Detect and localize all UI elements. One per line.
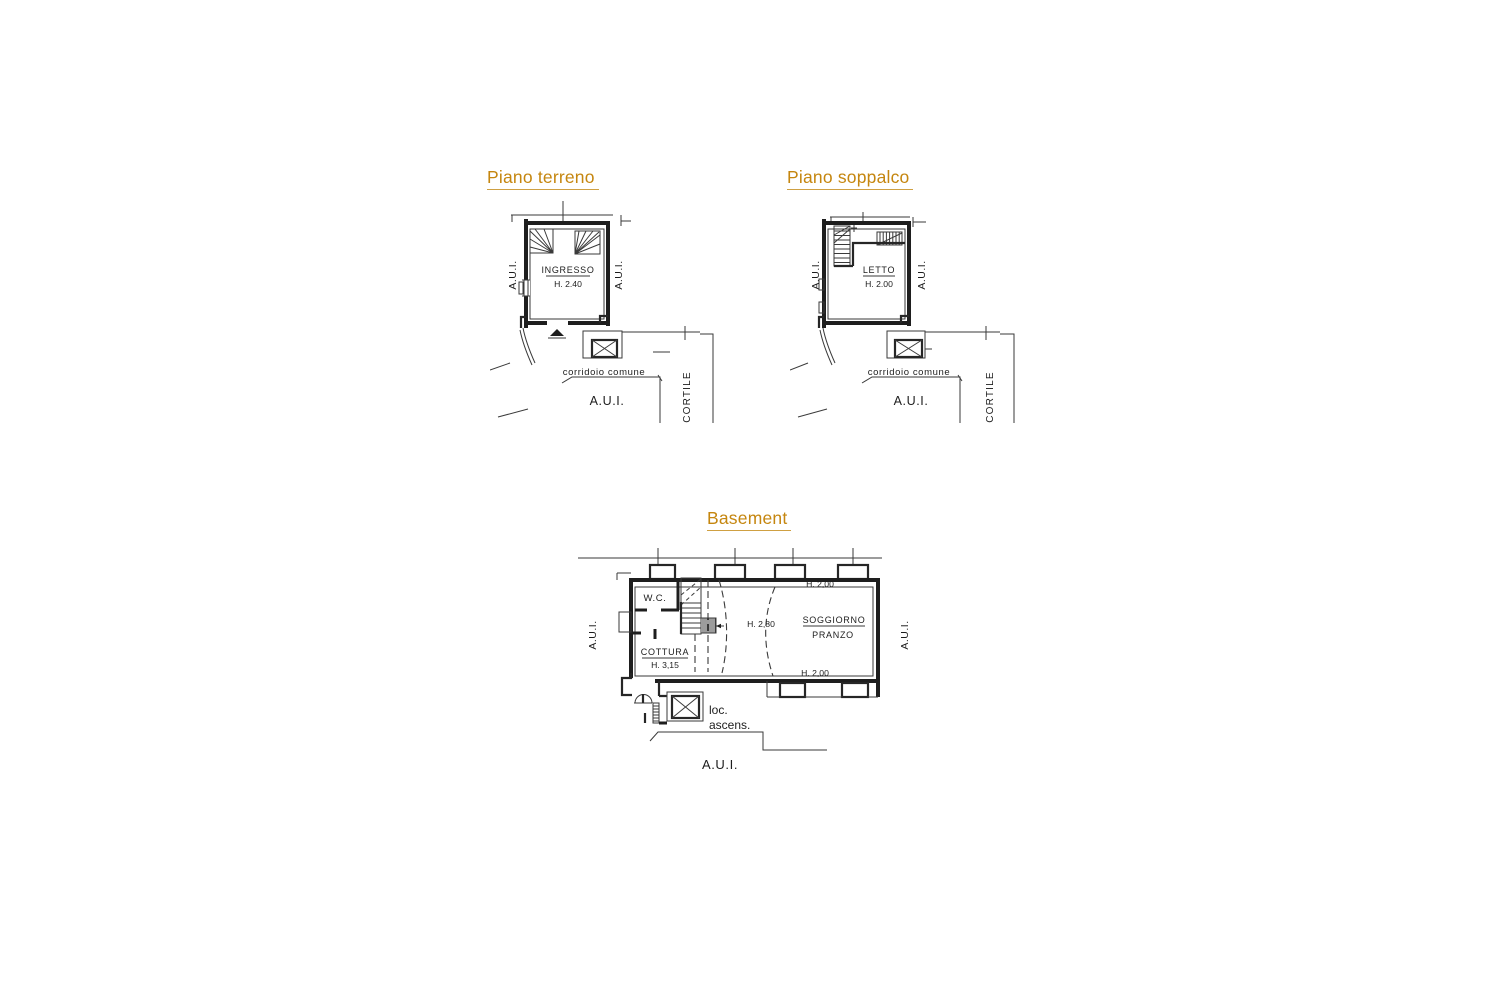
soppalco-room-label: LETTO <box>863 265 895 275</box>
soppalco-corridor-label: corridoio comune <box>868 367 950 378</box>
basement-window-bays-bottom <box>767 681 878 697</box>
basement-cottura-height-label: H. 3,15 <box>651 660 679 670</box>
basement-aui-left-label: A.U.I. <box>587 620 599 649</box>
soppalco-elevator-icon <box>887 331 1000 358</box>
terreno-staircase-left-icon <box>530 229 553 253</box>
basement-elevator-label-line2: ascens. <box>709 718 750 732</box>
floorplan-soppalco: LETTO H. 2.00 A.U.I. A.U.I. corridoio co… <box>790 195 1035 440</box>
soppalco-cortile-label: CORTILE <box>985 371 996 423</box>
basement-window-bays-top <box>650 565 868 579</box>
basement-wc-label: W.C. <box>644 593 667 604</box>
basement-elevator-label-line1: loc. <box>709 703 728 717</box>
basement-soggiorno-label: SOGGIORNO <box>803 615 866 625</box>
terreno-elevator-icon <box>583 331 700 358</box>
basement-elevator-icon <box>667 692 703 721</box>
floorplan-basement: W.C. COTTURA H. 3,15 H. 2,00 SOGGIORNO P… <box>575 545 940 795</box>
basement-cottura-label: COTTURA <box>641 647 689 657</box>
basement-pranzo-label: PRANZO <box>812 630 854 640</box>
basement-aui-right-label: A.U.I. <box>899 620 911 649</box>
plan-title-soppalco[interactable]: Piano soppalco <box>787 167 913 190</box>
plan-title-terreno[interactable]: Piano terreno <box>487 167 599 190</box>
basement-staircase-icon <box>681 578 724 634</box>
terreno-door-icon <box>548 329 566 338</box>
terreno-room-label: INGRESSO <box>541 265 594 275</box>
basement-height-top-label: H. 2,00 <box>806 579 834 589</box>
soppalco-aui-right-label: A.U.I. <box>916 260 928 289</box>
soppalco-room-height-label: H. 2.00 <box>865 279 893 289</box>
basement-height-bottom-label: H. 2,00 <box>801 668 829 678</box>
soppalco-aui-left-label: A.U.I. <box>810 260 822 289</box>
soppalco-aui-bottom-label: A.U.I. <box>894 394 929 408</box>
terreno-aui-right-label: A.U.I. <box>613 260 625 289</box>
floor-plans-page: Piano terreno Piano soppalco Basement <box>0 0 1500 1000</box>
plan-title-basement[interactable]: Basement <box>707 508 791 531</box>
terreno-room-height-label: H. 2.40 <box>554 279 582 289</box>
basement-aui-bottom-label: A.U.I. <box>702 757 738 772</box>
basement-height-mid-label: H. 2,80 <box>747 619 775 629</box>
floorplan-terreno: INGRESSO H. 2.40 A.U.I. A.U.I. corridoio… <box>490 195 735 440</box>
terreno-corridor-label: corridoio comune <box>563 367 645 378</box>
basement-corridor-lines <box>650 732 827 750</box>
terreno-aui-bottom-label: A.U.I. <box>590 394 625 408</box>
terreno-aui-left-label: A.U.I. <box>507 260 519 289</box>
terreno-staircase-top-icon <box>575 231 600 254</box>
terreno-cortile-label: CORTILE <box>682 371 693 423</box>
